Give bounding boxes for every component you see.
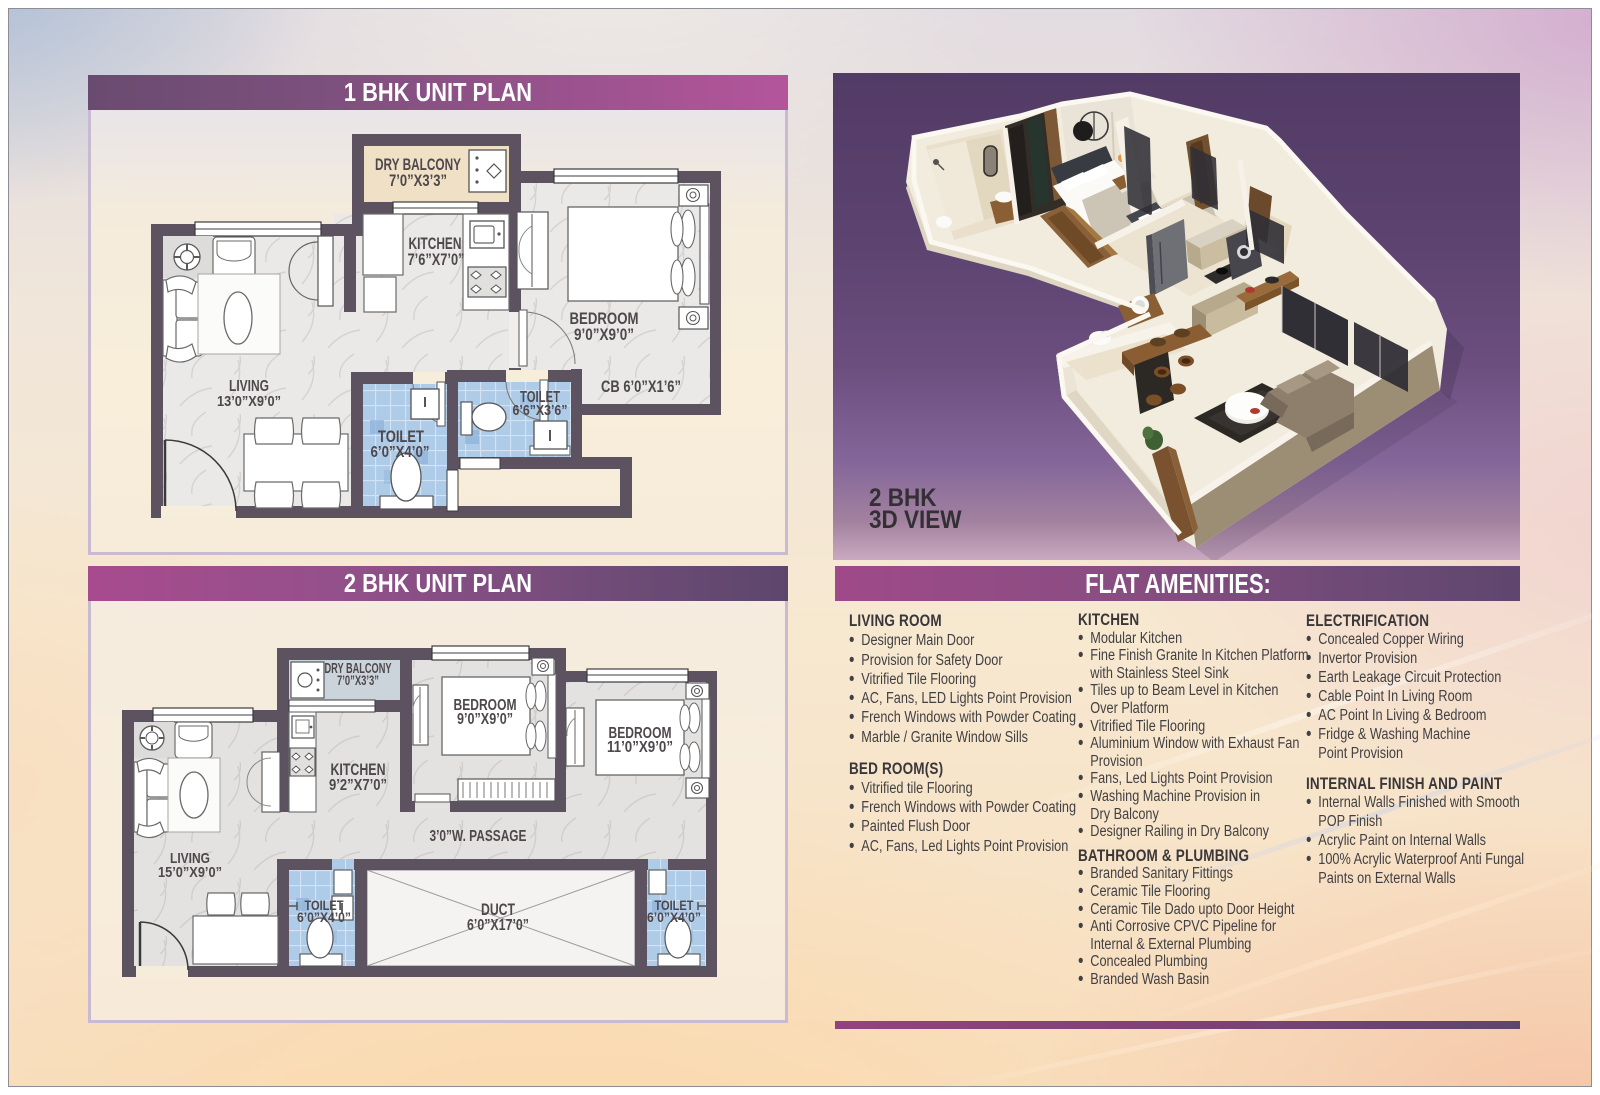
svg-text:9’2”X7’0”: 9’2”X7’0” (329, 777, 387, 794)
svg-text:7’0”X3’3”: 7’0”X3’3” (337, 672, 379, 688)
svg-text:7’0”X3’3”: 7’0”X3’3” (389, 172, 447, 190)
svg-text:CB 6’0”X1’6”: CB 6’0”X1’6” (601, 377, 681, 396)
svg-text:11’0”X9’0”: 11’0”X9’0” (607, 739, 673, 756)
svg-text:9’0”X9’0”: 9’0”X9’0” (457, 711, 513, 728)
svg-text:7’6”X7’0”: 7’6”X7’0” (408, 251, 465, 269)
svg-text:9’0”X9’0”: 9’0”X9’0” (574, 326, 634, 344)
svg-text:6’0”X4’0”: 6’0”X4’0” (371, 444, 430, 461)
svg-text:6’0”X4’0”: 6’0”X4’0” (647, 910, 701, 925)
svg-text:13’0”X9’0”: 13’0”X9’0” (217, 393, 281, 410)
svg-text:6’0”X4’0”: 6’0”X4’0” (297, 910, 351, 925)
svg-text:6’6”X3’6”: 6’6”X3’6” (513, 402, 568, 419)
svg-text:6’0”X17’0”: 6’0”X17’0” (467, 917, 529, 934)
svg-text:15’0”X9’0”: 15’0”X9’0” (158, 865, 222, 881)
svg-text:3’0”W. PASSAGE: 3’0”W. PASSAGE (430, 828, 527, 845)
